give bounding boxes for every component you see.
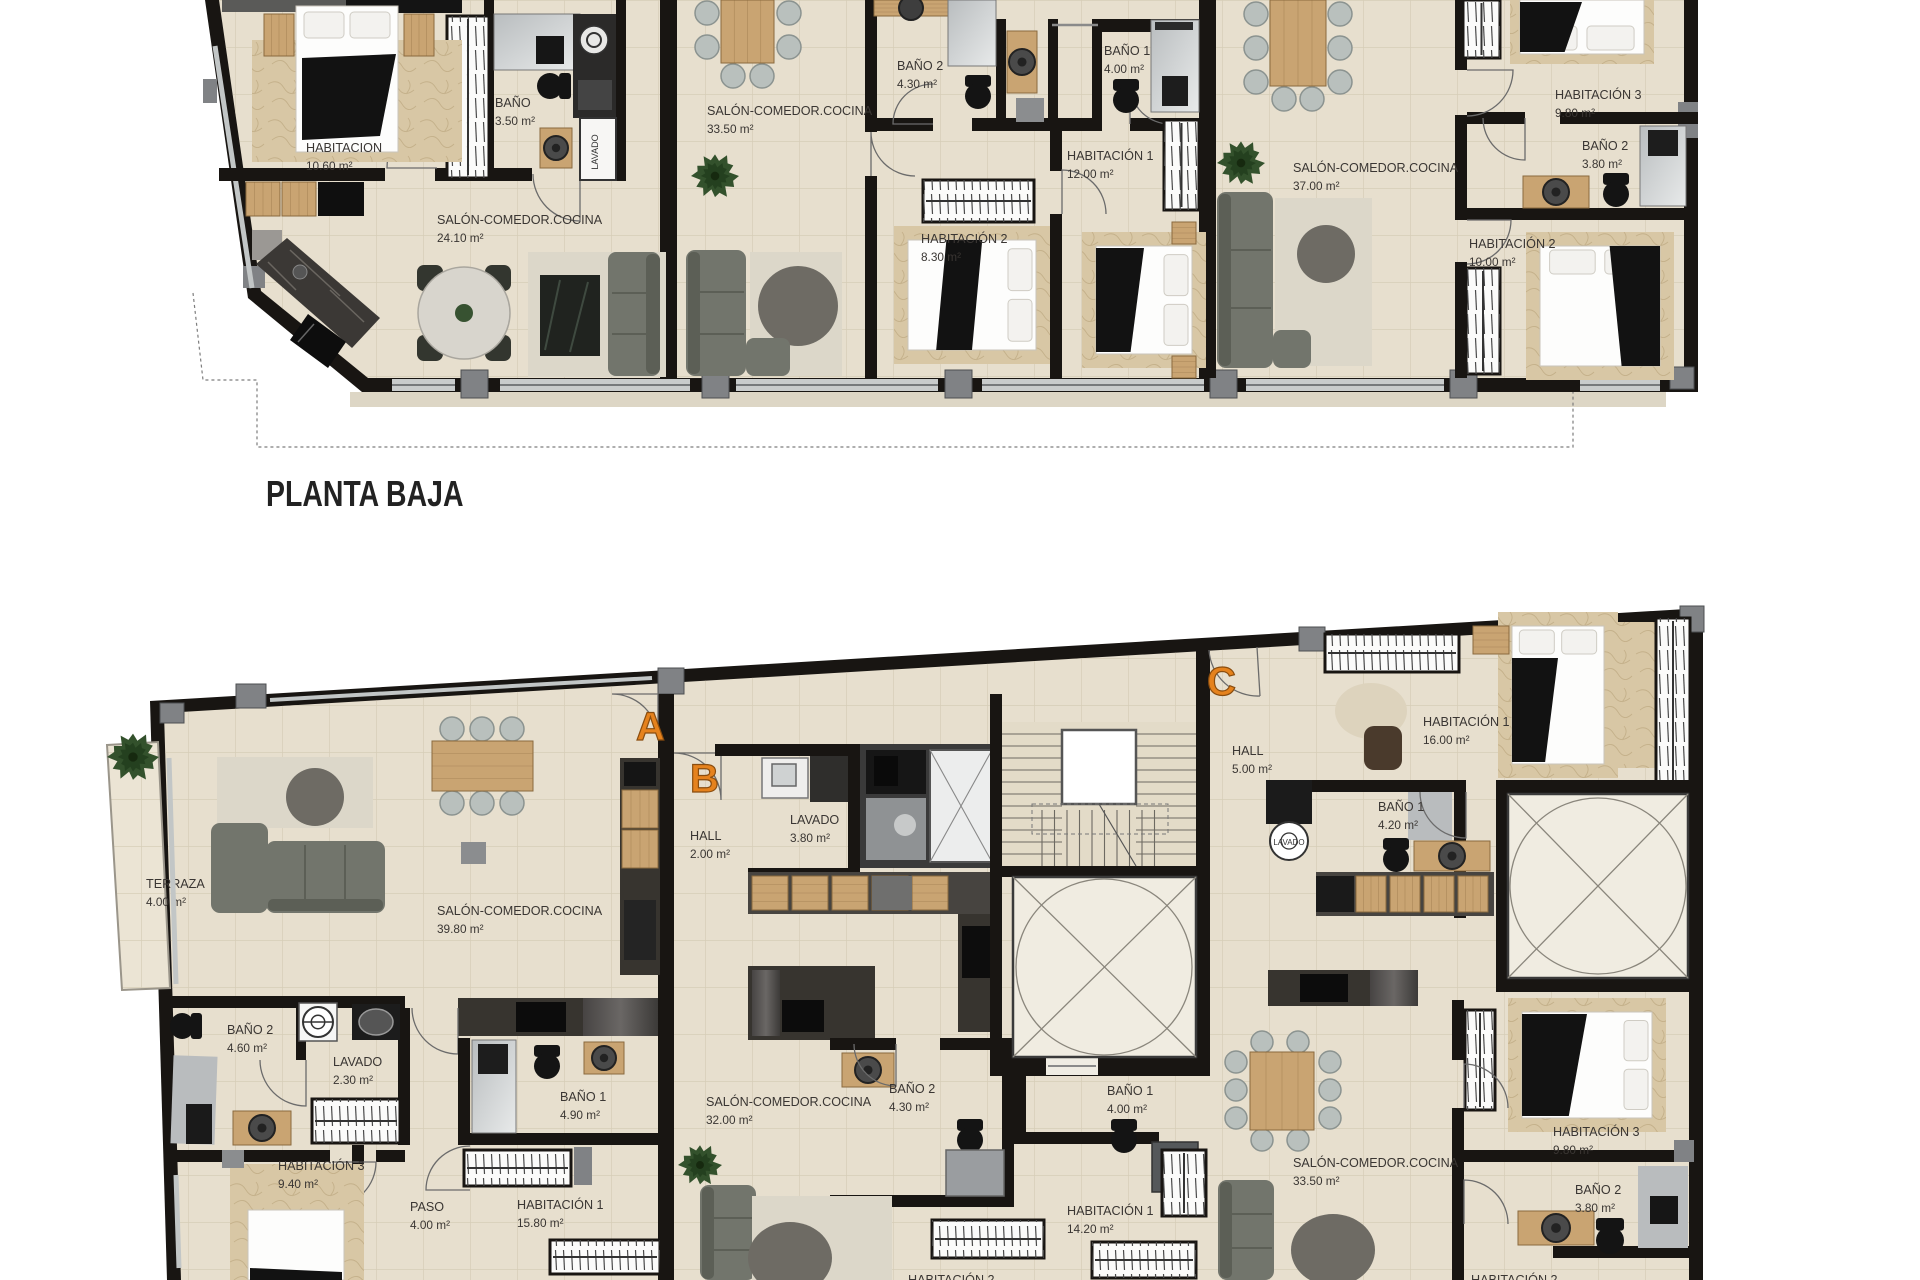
svg-text:LAVADO: LAVADO xyxy=(590,134,600,169)
svg-text:LAVADO: LAVADO xyxy=(333,1055,382,1069)
svg-text:SALÓN-COMEDOR.COCINA: SALÓN-COMEDOR.COCINA xyxy=(707,103,873,118)
svg-text:A: A xyxy=(636,705,665,749)
svg-text:39.80 m²: 39.80 m² xyxy=(437,922,484,936)
svg-text:4.90 m²: 4.90 m² xyxy=(560,1108,600,1122)
svg-text:12.00 m²: 12.00 m² xyxy=(1067,167,1114,181)
svg-text:BAÑO 2: BAÑO 2 xyxy=(227,1023,273,1037)
svg-text:4.00 m²: 4.00 m² xyxy=(1107,1102,1147,1116)
svg-text:SALÓN-COMEDOR.COCINA: SALÓN-COMEDOR.COCINA xyxy=(437,903,603,918)
svg-text:HABITACIÓN 2: HABITACIÓN 2 xyxy=(921,231,1008,246)
svg-text:BAÑO 2: BAÑO 2 xyxy=(1582,139,1628,153)
svg-text:9.40 m²: 9.40 m² xyxy=(278,1177,318,1191)
svg-text:4.20 m²: 4.20 m² xyxy=(1378,818,1418,832)
svg-text:BAÑO 2: BAÑO 2 xyxy=(897,59,943,73)
svg-text:9.80 m²: 9.80 m² xyxy=(1555,106,1595,120)
svg-text:4.00 m²: 4.00 m² xyxy=(146,895,186,909)
svg-text:8.30 m²: 8.30 m² xyxy=(921,250,961,264)
svg-text:4.00 m²: 4.00 m² xyxy=(1104,62,1144,76)
svg-text:SALÓN-COMEDOR.COCINA: SALÓN-COMEDOR.COCINA xyxy=(706,1094,872,1109)
svg-text:HABITACIÓN 1: HABITACIÓN 1 xyxy=(1423,714,1510,729)
svg-text:HABITACIÓN 2: HABITACIÓN 2 xyxy=(1471,1272,1558,1280)
svg-text:BAÑO: BAÑO xyxy=(495,96,531,110)
svg-text:33.50 m²: 33.50 m² xyxy=(707,122,754,136)
svg-text:32.00 m²: 32.00 m² xyxy=(706,1113,753,1127)
svg-text:B: B xyxy=(690,757,719,801)
svg-text:4.60 m²: 4.60 m² xyxy=(227,1041,267,1055)
svg-text:PASO: PASO xyxy=(410,1200,444,1214)
svg-text:HABITACIÓN 3: HABITACIÓN 3 xyxy=(278,1158,365,1173)
svg-text:10.60 m²: 10.60 m² xyxy=(306,159,353,173)
svg-text:HABITACION: HABITACION xyxy=(306,141,382,155)
svg-text:3.50 m²: 3.50 m² xyxy=(495,114,535,128)
svg-text:BAÑO 1: BAÑO 1 xyxy=(1107,1084,1153,1098)
svg-text:10.00 m²: 10.00 m² xyxy=(1469,255,1516,269)
svg-text:C: C xyxy=(1207,660,1236,704)
svg-text:3.80 m²: 3.80 m² xyxy=(1582,157,1622,171)
svg-text:15.80 m²: 15.80 m² xyxy=(517,1216,564,1230)
svg-text:SALÓN-COMEDOR.COCINA: SALÓN-COMEDOR.COCINA xyxy=(437,212,603,227)
svg-text:BAÑO 1: BAÑO 1 xyxy=(1104,44,1150,58)
svg-text:HABITACIÓN 1: HABITACIÓN 1 xyxy=(1067,1203,1154,1218)
svg-text:3.80 m²: 3.80 m² xyxy=(1575,1201,1615,1215)
svg-text:HABITACIÓN 1: HABITACIÓN 1 xyxy=(1067,148,1154,163)
svg-text:14.20 m²: 14.20 m² xyxy=(1067,1222,1114,1236)
svg-text:HABITACIÓN 2: HABITACIÓN 2 xyxy=(1469,236,1556,251)
svg-text:LAVADO: LAVADO xyxy=(1273,838,1304,847)
svg-text:SALÓN-COMEDOR.COCINA: SALÓN-COMEDOR.COCINA xyxy=(1293,160,1459,175)
svg-text:TERRAZA: TERRAZA xyxy=(146,877,205,891)
svg-text:3.80 m²: 3.80 m² xyxy=(790,831,830,845)
svg-text:HABITACIÓN 2: HABITACIÓN 2 xyxy=(908,1272,995,1280)
svg-text:33.50 m²: 33.50 m² xyxy=(1293,1174,1340,1188)
svg-text:HALL: HALL xyxy=(1232,744,1264,758)
svg-text:BAÑO 2: BAÑO 2 xyxy=(1575,1183,1621,1197)
svg-text:BAÑO 1: BAÑO 1 xyxy=(560,1090,606,1104)
svg-text:37.00 m²: 37.00 m² xyxy=(1293,179,1340,193)
svg-text:9.80 m²: 9.80 m² xyxy=(1553,1143,1593,1157)
svg-text:16.00 m²: 16.00 m² xyxy=(1423,733,1470,747)
svg-text:HALL: HALL xyxy=(690,829,722,843)
svg-text:2.30 m²: 2.30 m² xyxy=(333,1073,373,1087)
svg-text:HABITACIÓN 3: HABITACIÓN 3 xyxy=(1553,1124,1640,1139)
svg-text:SALÓN-COMEDOR.COCINA: SALÓN-COMEDOR.COCINA xyxy=(1293,1155,1459,1170)
svg-text:PLANTA BAJA: PLANTA BAJA xyxy=(266,474,463,514)
svg-text:5.00 m²: 5.00 m² xyxy=(1232,762,1272,776)
svg-text:24.10 m²: 24.10 m² xyxy=(437,231,484,245)
svg-text:LAVADO: LAVADO xyxy=(790,813,839,827)
svg-text:4.00 m²: 4.00 m² xyxy=(410,1218,450,1232)
svg-text:HABITACIÓN 3: HABITACIÓN 3 xyxy=(1555,87,1642,102)
svg-text:BAÑO 2: BAÑO 2 xyxy=(889,1082,935,1096)
svg-text:4.30 m²: 4.30 m² xyxy=(897,77,937,91)
svg-text:HABITACIÓN 1: HABITACIÓN 1 xyxy=(517,1197,604,1212)
svg-text:4.30 m²: 4.30 m² xyxy=(889,1100,929,1114)
svg-text:BAÑO 1: BAÑO 1 xyxy=(1378,800,1424,814)
svg-text:2.00 m²: 2.00 m² xyxy=(690,847,730,861)
